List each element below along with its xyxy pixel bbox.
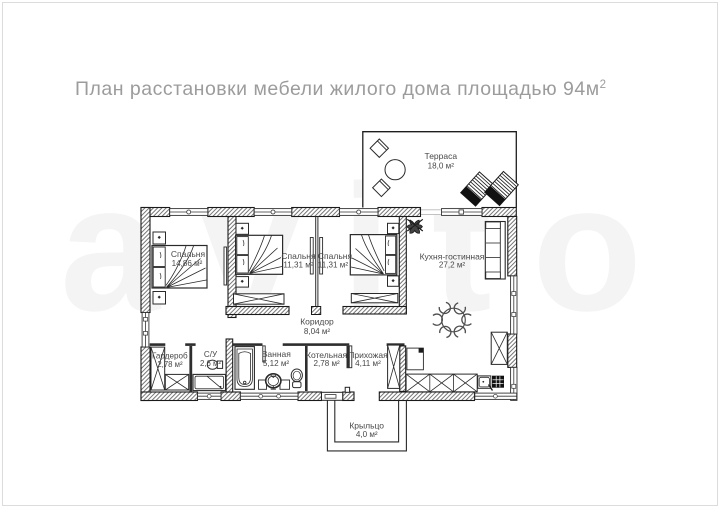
svg-text:Терраса: Терраса [424, 151, 457, 161]
svg-text:27,2 м²: 27,2 м² [439, 260, 466, 269]
svg-text:Ванная: Ванная [262, 349, 292, 359]
svg-text:С/У: С/У [204, 350, 218, 359]
svg-text:Спальня: Спальня [281, 251, 316, 261]
svg-text:11,31 м²: 11,31 м² [318, 260, 348, 269]
svg-text:8,04 м²: 8,04 м² [304, 327, 331, 336]
svg-text:План расстановки мебели жилого: План расстановки мебели жилого дома площ… [75, 78, 607, 100]
svg-text:5,12 м²: 5,12 м² [263, 359, 290, 368]
svg-text:2,6 м²: 2,6 м² [200, 359, 221, 368]
svg-text:4,11 м²: 4,11 м² [355, 359, 381, 368]
svg-text:4,0 м²: 4,0 м² [356, 430, 378, 439]
svg-text:2,78 м²: 2,78 м² [313, 359, 340, 368]
svg-text:11,31 м²: 11,31 м² [283, 260, 313, 269]
svg-text:Крыльцо: Крыльцо [349, 420, 384, 430]
svg-text:Коридор: Коридор [300, 316, 334, 326]
svg-text:2,78 м²: 2,78 м² [157, 360, 183, 369]
svg-text:14,86 м²: 14,86 м² [172, 259, 203, 268]
svg-text:Спальня: Спальня [171, 249, 206, 259]
svg-text:18,0 м²: 18,0 м² [428, 161, 455, 170]
